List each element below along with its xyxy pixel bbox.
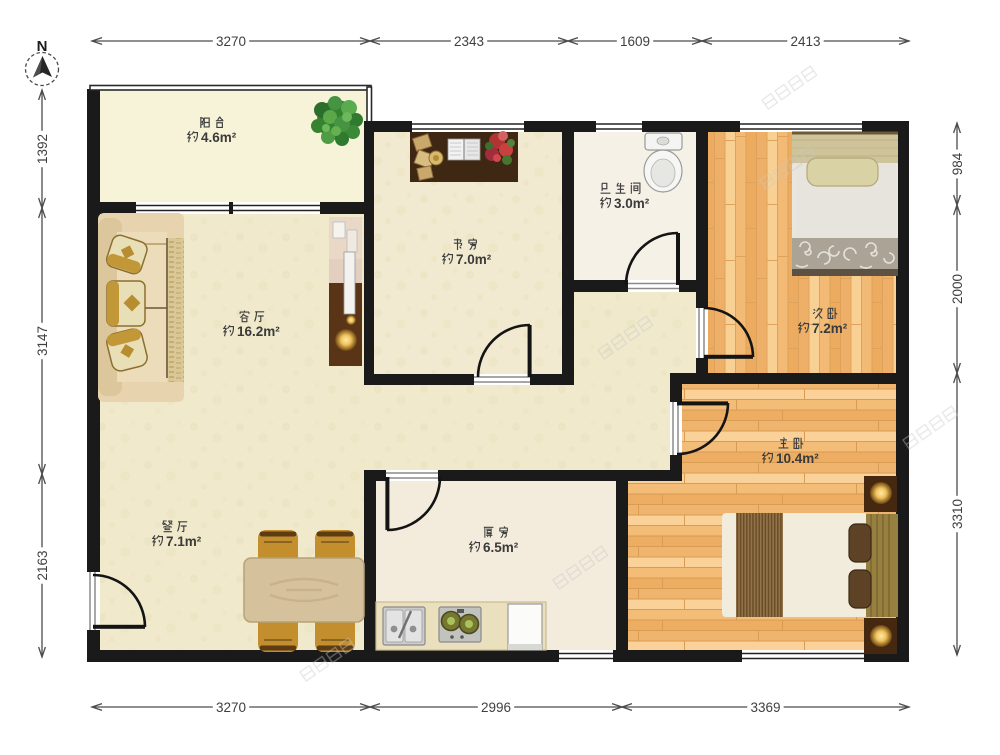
svg-text:984: 984 [950,152,965,175]
svg-text:N: N [37,38,48,55]
svg-text:2343: 2343 [454,34,484,49]
svg-text:16.2m²: 16.2m² [237,324,280,339]
svg-text:6.5m²: 6.5m² [483,540,519,555]
svg-text:2413: 2413 [790,34,820,49]
svg-text:3310: 3310 [950,499,965,529]
svg-text:2000: 2000 [950,274,965,304]
svg-text:7.2m²: 7.2m² [812,321,848,336]
svg-text:1392: 1392 [35,134,50,164]
svg-text:4.6m²: 4.6m² [201,130,237,145]
svg-text:3270: 3270 [216,34,246,49]
svg-text:3270: 3270 [216,700,246,715]
svg-text:3369: 3369 [750,700,780,715]
svg-text:7.1m²: 7.1m² [166,534,202,549]
svg-text:2996: 2996 [481,700,511,715]
svg-text:3.0m²: 3.0m² [614,196,650,211]
svg-text:10.4m²: 10.4m² [776,451,819,466]
svg-text:2163: 2163 [35,550,50,580]
svg-text:7.0m²: 7.0m² [456,252,492,267]
svg-text:3147: 3147 [35,326,50,356]
svg-text:1609: 1609 [620,34,650,49]
